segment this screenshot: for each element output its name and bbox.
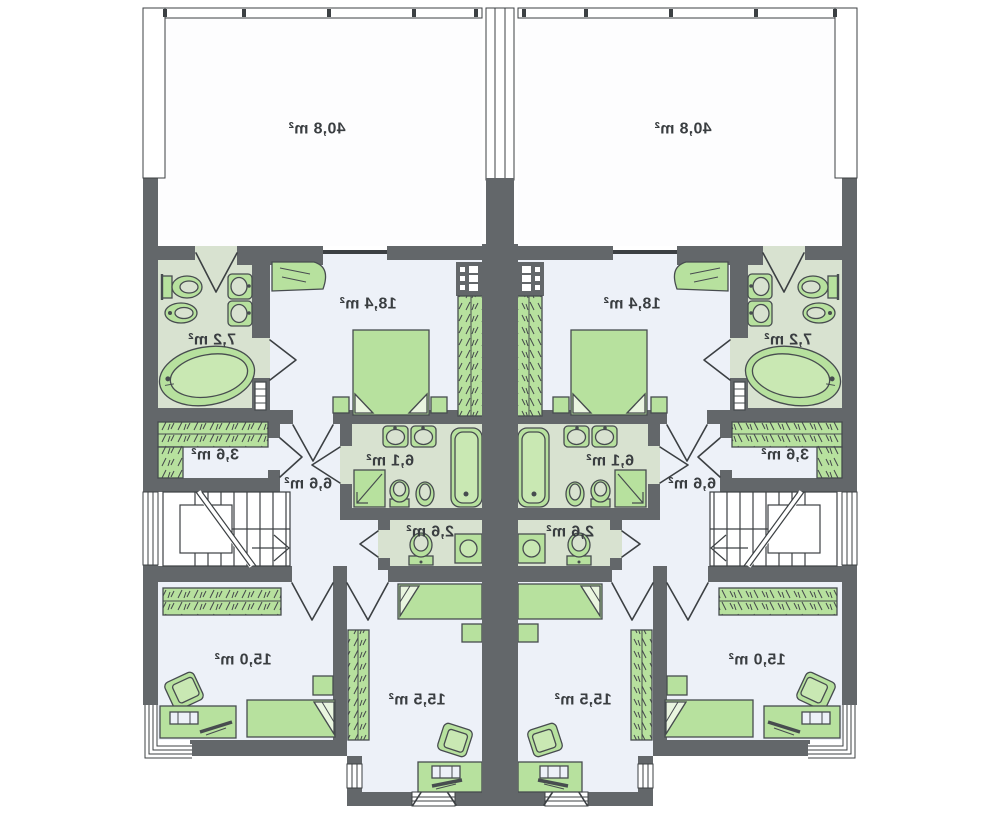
room-label-left-hall: 6,6 m² <box>284 476 332 493</box>
party-wall <box>482 8 518 806</box>
room-label-right-bedroom: 18,4 m² <box>603 296 660 313</box>
room-label-right-terrace: 40,8 m² <box>654 121 711 138</box>
room-label-left-wardrobe: 3,6 m² <box>191 447 239 464</box>
room-label-left-bedroom: 18,4 m² <box>339 296 396 313</box>
party-wall-lower <box>482 244 518 806</box>
room-label-right-hall: 6,6 m² <box>668 476 716 493</box>
room-label-left-terrace: 40,8 m² <box>288 121 345 138</box>
room-label-right-wardrobe: 3,6 m² <box>761 447 809 464</box>
floor-plan-drawing: 40,8 m²18,4 m²7,2 m²3,6 m²6,6 m²6,1 m²2,… <box>0 0 1000 823</box>
room-label-left-bathroom-small: 6,1 m² <box>366 453 414 470</box>
room-label-right-bathroom: 7,2 m² <box>764 332 812 349</box>
party-wall-terrace <box>486 8 514 180</box>
party-wall-mid <box>486 178 514 246</box>
room-label-left-room-15-5: 15,5 m² <box>388 692 445 709</box>
floor-plan-page: 40,8 m²18,4 m²7,2 m²3,6 m²6,6 m²6,1 m²2,… <box>0 0 1000 823</box>
room-label-right-bathroom-small: 6,1 m² <box>586 453 634 470</box>
room-label-left-wc: 2,6 m² <box>406 524 454 541</box>
room-label-right-room-15-5: 15,5 m² <box>554 692 611 709</box>
room-label-left-room-15-0: 15,0 m² <box>214 652 271 669</box>
room-label-left-bathroom: 7,2 m² <box>188 332 236 349</box>
room-label-right-wc: 2,6 m² <box>546 524 594 541</box>
room-label-right-room-15-0: 15,0 m² <box>728 652 785 669</box>
